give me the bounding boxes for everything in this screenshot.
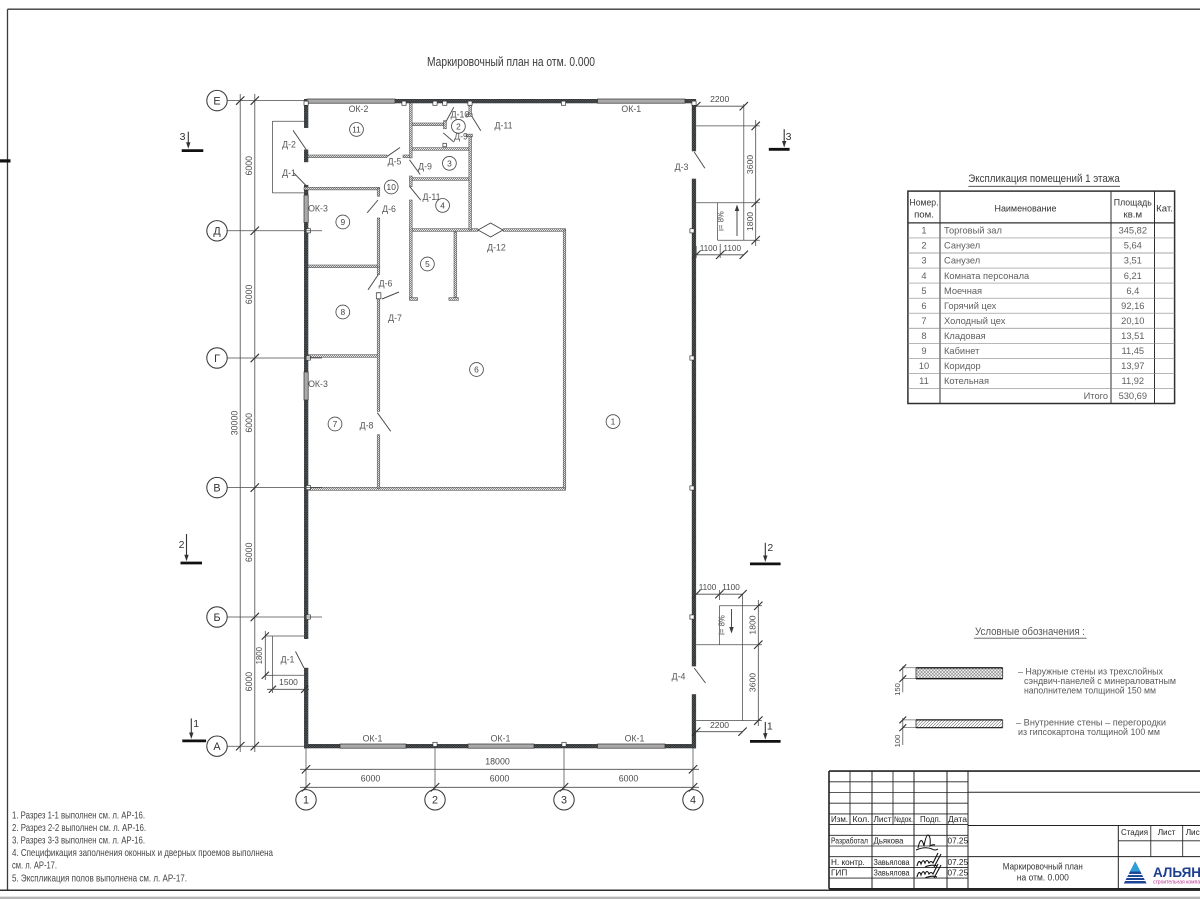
svg-text:3: 3 bbox=[447, 158, 452, 168]
svg-text:1100: 1100 bbox=[700, 244, 718, 253]
svg-text:АЛЬЯНС: АЛЬЯНС bbox=[1153, 865, 1200, 880]
svg-text:Д-12: Д-12 bbox=[487, 243, 506, 253]
svg-text:6000: 6000 bbox=[244, 285, 254, 305]
svg-text:на отм. 0.000: на отм. 0.000 bbox=[1017, 873, 1069, 883]
svg-text:20,10: 20,10 bbox=[1121, 316, 1144, 326]
svg-text:строительная компания: строительная компания bbox=[1153, 880, 1200, 886]
svg-text:5. Экспликация полов выполнена: 5. Экспликация полов выполнена см. л. АР… bbox=[12, 873, 187, 884]
svg-text:4. Спецификация заполнения око: 4. Спецификация заполнения оконных и две… bbox=[12, 847, 273, 859]
svg-text:ОК-1: ОК-1 bbox=[491, 734, 511, 744]
svg-text:Д-6: Д-6 bbox=[379, 279, 393, 289]
svg-text:А: А bbox=[213, 741, 221, 753]
svg-text:6000: 6000 bbox=[619, 774, 639, 784]
svg-text:Площадь: Площадь bbox=[1114, 198, 1152, 209]
svg-text:пом.: пом. bbox=[914, 210, 934, 221]
svg-text:Коридор: Коридор bbox=[944, 361, 981, 371]
svg-text:13,97: 13,97 bbox=[1121, 361, 1144, 371]
svg-text:Кат.: Кат. bbox=[1156, 204, 1173, 215]
svg-text:4: 4 bbox=[921, 271, 926, 281]
svg-text:6000: 6000 bbox=[244, 542, 254, 562]
svg-text:10: 10 bbox=[387, 182, 397, 192]
svg-text:Д: Д bbox=[213, 226, 221, 238]
svg-text:Д-2: Д-2 bbox=[282, 139, 296, 149]
svg-text:530,69: 530,69 bbox=[1119, 391, 1147, 401]
svg-text:Д-1: Д-1 bbox=[281, 654, 295, 664]
svg-text:Торговый зал: Торговый зал bbox=[944, 226, 1002, 236]
svg-text:2200: 2200 bbox=[710, 720, 729, 730]
svg-text:6: 6 bbox=[921, 301, 926, 311]
svg-text:Д-5: Д-5 bbox=[388, 157, 402, 167]
svg-text:5,64: 5,64 bbox=[1124, 241, 1142, 251]
svg-text:5: 5 bbox=[921, 286, 926, 296]
svg-text:Моечная: Моечная bbox=[944, 286, 982, 296]
svg-text:Листов: Листов bbox=[1186, 828, 1200, 837]
svg-text:Д-3: Д-3 bbox=[675, 162, 689, 172]
svg-text:Д-11: Д-11 bbox=[494, 120, 512, 130]
svg-text:Маркировочный план: Маркировочный план bbox=[1003, 862, 1083, 872]
svg-text:Холодный цех: Холодный цех bbox=[944, 316, 1006, 326]
svg-text:6000: 6000 bbox=[361, 774, 381, 784]
svg-text:3,51: 3,51 bbox=[1124, 256, 1142, 266]
svg-text:Завьялова: Завьялова bbox=[874, 858, 910, 867]
svg-text:Котельная: Котельная bbox=[944, 376, 989, 386]
svg-text:Д-10: Д-10 bbox=[451, 110, 470, 120]
svg-text:Д-6: Д-6 bbox=[382, 204, 396, 214]
svg-text:Экспликация помещений 1 этажа: Экспликация помещений 1 этажа bbox=[968, 173, 1120, 185]
svg-text:Санузел: Санузел bbox=[944, 241, 980, 251]
svg-text:наполнителем толщиной 150 мм: наполнителем толщиной 150 мм bbox=[1024, 686, 1156, 697]
svg-text:Кол.: Кол. bbox=[853, 815, 870, 824]
svg-text:2: 2 bbox=[432, 795, 438, 807]
svg-text:1: 1 bbox=[921, 226, 926, 236]
svg-text:30000: 30000 bbox=[230, 411, 240, 436]
svg-text:Комната персонала: Комната персонала bbox=[944, 271, 1030, 281]
svg-text:см. л. АР-17.: см. л. АР-17. bbox=[12, 861, 57, 872]
svg-text:2: 2 bbox=[921, 241, 926, 251]
svg-text:3: 3 bbox=[921, 256, 926, 266]
svg-text:Наименование: Наименование bbox=[995, 204, 1057, 215]
svg-text:Н. контр.: Н. контр. bbox=[831, 858, 865, 867]
svg-text:Д-9: Д-9 bbox=[418, 161, 432, 171]
svg-text:Д-4: Д-4 bbox=[672, 671, 686, 681]
svg-text:Дата: Дата bbox=[948, 815, 967, 824]
svg-text:8: 8 bbox=[340, 307, 345, 317]
svg-text:1800: 1800 bbox=[745, 212, 755, 231]
svg-text:Г: Г bbox=[214, 353, 220, 365]
svg-text:11: 11 bbox=[352, 124, 361, 134]
svg-text:4: 4 bbox=[440, 200, 445, 210]
svg-text:6,21: 6,21 bbox=[1124, 271, 1142, 281]
svg-text:Номер.: Номер. bbox=[910, 198, 939, 209]
svg-text:Завьялова: Завьялова bbox=[874, 868, 910, 877]
svg-text:Санузел: Санузел bbox=[944, 256, 980, 266]
svg-text:13,51: 13,51 bbox=[1121, 331, 1144, 341]
svg-text:Е: Е bbox=[213, 95, 220, 107]
svg-text:3600: 3600 bbox=[745, 155, 755, 174]
svg-text:Д-8: Д-8 bbox=[360, 420, 374, 430]
svg-text:3600: 3600 bbox=[747, 673, 757, 692]
svg-text:1100: 1100 bbox=[722, 583, 740, 592]
svg-text:2: 2 bbox=[767, 542, 773, 554]
svg-text:6000: 6000 bbox=[244, 413, 254, 433]
svg-text:3: 3 bbox=[786, 131, 792, 143]
svg-text:Б: Б bbox=[213, 612, 220, 624]
svg-text:3. Разрез 3-3 выполнен см. л.: 3. Разрез 3-3 выполнен см. л. АР-16. bbox=[12, 836, 145, 847]
svg-text:Условные обозначения :: Условные обозначения : bbox=[975, 626, 1085, 638]
svg-text:1100: 1100 bbox=[723, 244, 741, 253]
svg-text:92,16: 92,16 bbox=[1121, 301, 1144, 311]
svg-text:11,92: 11,92 bbox=[1122, 376, 1145, 386]
svg-text:2200: 2200 bbox=[710, 94, 729, 104]
svg-text:9: 9 bbox=[921, 346, 926, 356]
svg-text:i= 8%: i= 8% bbox=[717, 211, 726, 231]
svg-text:ГИП: ГИП bbox=[831, 868, 847, 877]
svg-text:1: 1 bbox=[303, 795, 309, 807]
svg-text:из гипсокартона толщиной 100 м: из гипсокартона толщиной 100 мм bbox=[1018, 727, 1160, 738]
svg-text:7: 7 bbox=[333, 419, 338, 429]
svg-text:1800: 1800 bbox=[747, 615, 757, 634]
svg-text:6000: 6000 bbox=[244, 156, 254, 176]
svg-text:6: 6 bbox=[474, 365, 479, 375]
svg-text:3: 3 bbox=[180, 131, 186, 143]
svg-text:07.25: 07.25 bbox=[948, 868, 969, 877]
svg-text:№док.: №док. bbox=[894, 815, 913, 824]
svg-text:2: 2 bbox=[179, 539, 185, 551]
svg-text:7: 7 bbox=[921, 316, 926, 326]
svg-text:1: 1 bbox=[611, 417, 616, 427]
svg-text:2: 2 bbox=[456, 121, 461, 131]
svg-text:1: 1 bbox=[767, 721, 773, 733]
svg-text:1: 1 bbox=[193, 718, 199, 730]
svg-text:Дьякова: Дьякова bbox=[874, 836, 904, 845]
svg-text:Горячий цех: Горячий цех bbox=[944, 301, 997, 311]
svg-text:1800: 1800 bbox=[255, 646, 264, 664]
svg-text:В: В bbox=[213, 482, 220, 494]
svg-text:3: 3 bbox=[561, 795, 567, 807]
svg-text:1. Разрез 1-1 выполнен см. л.: 1. Разрез 1-1 выполнен см. л. АР-16. bbox=[12, 811, 145, 822]
svg-text:11,45: 11,45 bbox=[1122, 346, 1145, 356]
svg-text:6000: 6000 bbox=[244, 672, 254, 692]
svg-text:9: 9 bbox=[340, 217, 345, 227]
svg-text:Разработал: Разработал bbox=[831, 836, 868, 845]
svg-text:кв.м: кв.м bbox=[1124, 210, 1143, 221]
svg-text:ОК-3: ОК-3 bbox=[308, 379, 328, 389]
svg-text:i= 8%: i= 8% bbox=[718, 615, 727, 635]
svg-text:8: 8 bbox=[921, 331, 926, 341]
svg-text:4: 4 bbox=[690, 795, 696, 807]
svg-text:ОК-3: ОК-3 bbox=[308, 204, 328, 214]
svg-text:07.25: 07.25 bbox=[948, 836, 969, 845]
svg-text:07.25: 07.25 bbox=[948, 858, 969, 867]
svg-text:100: 100 bbox=[893, 735, 902, 748]
svg-text:Кабинет: Кабинет bbox=[944, 346, 980, 356]
svg-text:ОК-1: ОК-1 bbox=[363, 734, 383, 744]
svg-text:11: 11 bbox=[919, 376, 929, 386]
svg-text:Д-1: Д-1 bbox=[282, 168, 296, 178]
svg-text:Изм.: Изм. bbox=[831, 815, 848, 824]
svg-text:Маркировочный план на отм. 0.0: Маркировочный план на отм. 0.000 bbox=[427, 55, 595, 69]
svg-text:150: 150 bbox=[893, 683, 902, 696]
svg-text:345,82: 345,82 bbox=[1119, 226, 1147, 236]
svg-text:6,4: 6,4 bbox=[1126, 286, 1139, 296]
svg-text:Лист: Лист bbox=[1158, 828, 1176, 837]
svg-text:ОК-2: ОК-2 bbox=[349, 104, 369, 114]
svg-text:ОК-1: ОК-1 bbox=[621, 104, 641, 114]
svg-text:1500: 1500 bbox=[279, 677, 298, 687]
svg-text:Итого: Итого bbox=[1084, 391, 1108, 401]
svg-text:Стадия: Стадия bbox=[1121, 828, 1148, 837]
svg-text:2. Разрез 2-2 выполнен см. л.: 2. Разрез 2-2 выполнен см. л. АР-16. bbox=[12, 823, 146, 834]
svg-text:18000: 18000 bbox=[485, 757, 510, 767]
svg-text:ОК-1: ОК-1 bbox=[625, 734, 645, 744]
svg-text:6000: 6000 bbox=[490, 774, 510, 784]
svg-text:1100: 1100 bbox=[699, 583, 717, 592]
svg-text:Подп.: Подп. bbox=[920, 815, 941, 824]
svg-text:Кладовая: Кладовая bbox=[944, 331, 986, 341]
svg-text:Лист: Лист bbox=[874, 815, 892, 824]
svg-text:Д-7: Д-7 bbox=[388, 313, 402, 323]
svg-text:5: 5 bbox=[425, 259, 430, 269]
svg-text:10: 10 bbox=[919, 361, 929, 371]
